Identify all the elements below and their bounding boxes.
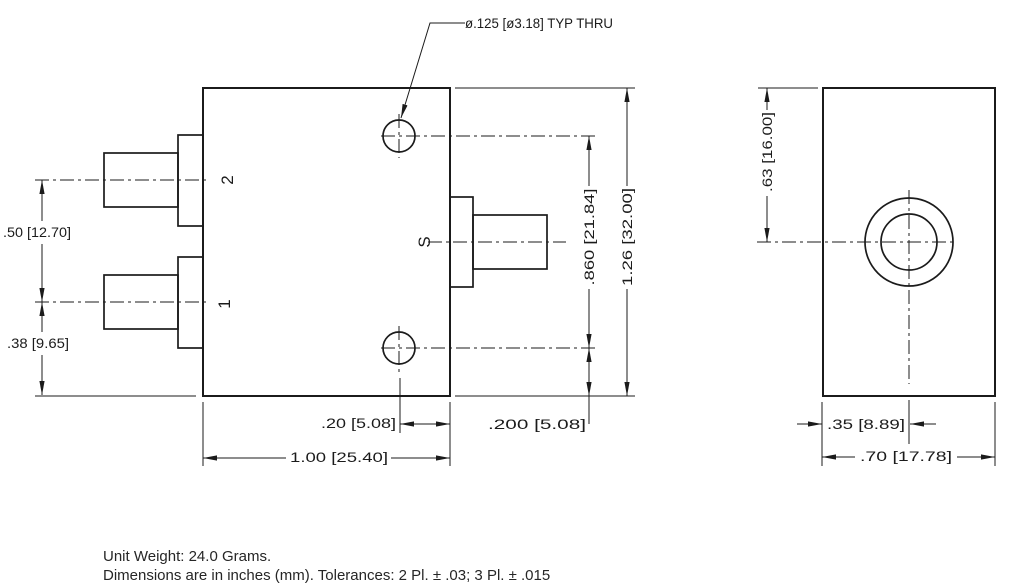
dim-text-hole-to-bottom: .200 [5.08] bbox=[488, 417, 586, 432]
dim-text-hole-to-edge: .20 [5.08] bbox=[321, 416, 396, 431]
extension-lines bbox=[35, 88, 995, 466]
dim-text-side-center: .63 [16.00] bbox=[760, 112, 775, 192]
dim-text-side-offset: .35 [8.89] bbox=[827, 417, 905, 432]
hole-callout-leader bbox=[401, 23, 465, 118]
front-view bbox=[35, 88, 598, 396]
front-body-outline bbox=[203, 88, 450, 396]
sum-port-label: S bbox=[415, 236, 434, 247]
note-tolerances: Dimensions are in inches (mm). Tolerance… bbox=[103, 567, 550, 584]
hole-callout-text: ø.125 [ø3.18] TYP THRU bbox=[465, 16, 613, 31]
side-view bbox=[757, 88, 995, 396]
port2-label: 2 bbox=[218, 175, 237, 184]
dim-text-width: 1.00 [25.40] bbox=[290, 450, 388, 465]
dim-text-port1-to-bottom: .38 [9.65] bbox=[7, 336, 69, 351]
technical-drawing: ø.125 [ø3.18] TYP THRU .50 [12.70] .38 [… bbox=[0, 0, 1010, 588]
notes-block: Unit Weight: 24.0 Grams. Dimensions are … bbox=[103, 548, 550, 584]
port1-label: 1 bbox=[215, 299, 234, 308]
drawing-sheet: ø.125 [ø3.18] TYP THRU .50 [12.70] .38 [… bbox=[0, 0, 1010, 588]
dim-text-height: 1.26 [32.00] bbox=[620, 188, 635, 286]
note-unit-weight: Unit Weight: 24.0 Grams. bbox=[103, 548, 271, 565]
dim-text-depth: .70 [17.78] bbox=[860, 449, 952, 464]
annotations: ø.125 [ø3.18] TYP THRU .50 [12.70] .38 [… bbox=[3, 16, 952, 465]
dim-text-hole-spacing: .860 [21.84] bbox=[582, 189, 597, 286]
dim-text-port-spacing: .50 [12.70] bbox=[3, 225, 71, 240]
